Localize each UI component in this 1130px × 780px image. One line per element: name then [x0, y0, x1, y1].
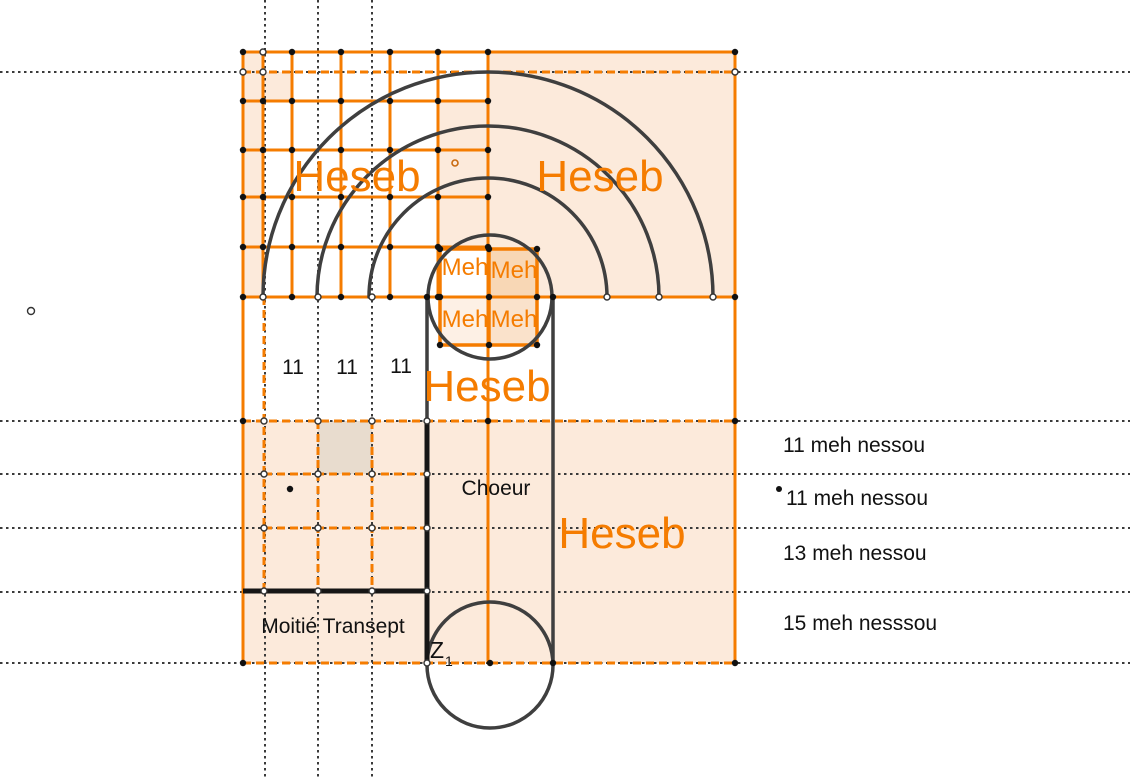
- label-row-11b: 11 meh nessou: [786, 487, 928, 510]
- label-row-11a: 11 meh nessou: [783, 434, 925, 457]
- label-heseb-middle: Heseb: [423, 362, 550, 411]
- label-meh-bl: Meh: [442, 306, 489, 333]
- label-meh-tr: Meh: [491, 257, 538, 284]
- label-heseb-top-left: Heseb: [293, 152, 420, 201]
- stray-point-right: [776, 486, 782, 492]
- label-choeur: Choeur: [462, 477, 531, 500]
- label-meh-br: Meh: [491, 306, 538, 333]
- label-z-subscript: 1: [445, 653, 453, 669]
- label-meh-tl: Meh: [442, 254, 489, 281]
- label-heseb-top-right: Heseb: [536, 152, 663, 201]
- label-row-15: 15 meh nesssou: [783, 612, 937, 635]
- geometry-app: Heseb Heseb Heseb Heseb Meh Meh Meh Meh …: [0, 0, 1130, 780]
- label-z: Z: [430, 637, 444, 663]
- isolated-point-left: [28, 308, 35, 315]
- stray-point-left: [287, 486, 293, 492]
- label-col1: 11: [282, 356, 304, 379]
- label-heseb-lower-right: Heseb: [558, 509, 685, 558]
- orange-ring-point[interactable]: [452, 160, 458, 166]
- label-moitie-transept: Moitié Transept: [261, 615, 405, 638]
- tan-cell: [318, 421, 372, 474]
- label-col2: 11: [336, 356, 358, 379]
- label-row-13: 13 meh nessou: [783, 542, 927, 565]
- geometry-canvas[interactable]: Heseb Heseb Heseb Heseb Meh Meh Meh Meh …: [0, 0, 1130, 780]
- label-col3: 11: [390, 355, 412, 378]
